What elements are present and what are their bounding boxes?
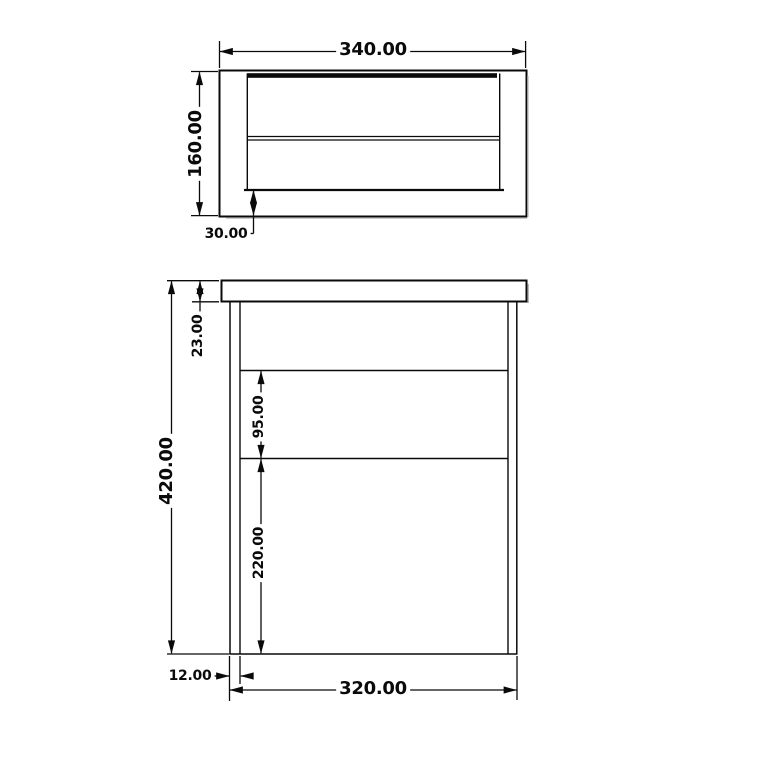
plan-back-panel-bar	[247, 73, 497, 78]
dim-label-side-panel-thickness: 12.00	[166, 669, 215, 683]
dim-label-lower-shelf-spacing: 220.00	[252, 524, 266, 582]
dim-label-overall-height: 420.00	[158, 434, 176, 508]
dim-label-upper-shelf-spacing: 95.00	[252, 393, 266, 442]
dim-label-inner-width: 320.00	[336, 680, 410, 698]
dim-label-overall-width: 340.00	[336, 41, 410, 59]
plan-view	[220, 71, 528, 219]
plan-outer-body	[220, 71, 527, 217]
technical-drawing-canvas: 340.00 160.00 30.00 420.00 23.00 95.00 2…	[0, 0, 760, 760]
front-view	[222, 281, 529, 655]
dim-label-top-panel-thickness: 23.00	[191, 312, 205, 361]
front-dimensions	[167, 281, 517, 701]
front-top-panel	[222, 281, 527, 302]
dim-label-overall-depth: 160.00	[187, 107, 205, 181]
dim-label-front-offset: 30.00	[202, 227, 251, 241]
drawing-linework	[0, 0, 760, 760]
